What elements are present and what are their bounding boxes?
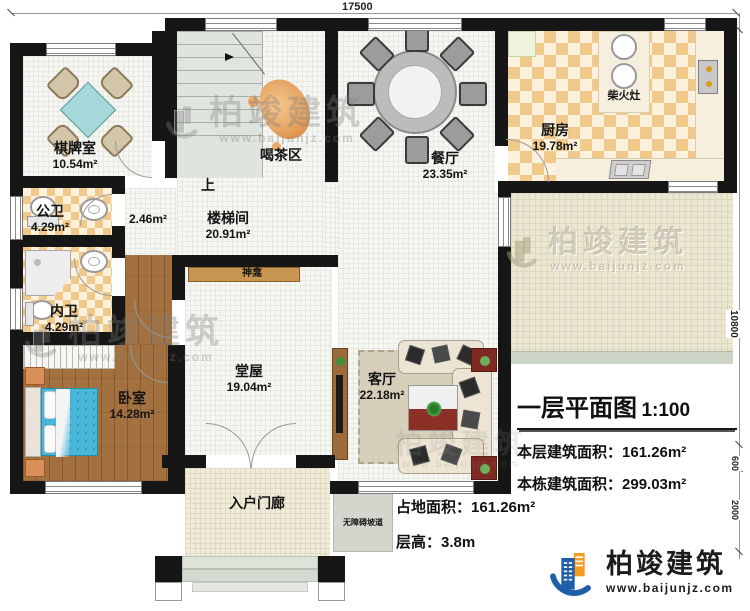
nightstand [25, 367, 45, 385]
label-wood-stove: 柴火灶 [594, 90, 654, 103]
room-name: 棋牌室 [33, 140, 117, 157]
porch-column [318, 556, 345, 582]
stair-treads [177, 31, 263, 143]
room-area: 4.29m² [22, 220, 78, 234]
sink-basin [614, 164, 629, 176]
room-area: 4.29m² [36, 320, 92, 334]
room-label-kitchen: 厨房 19.78m² [513, 122, 597, 153]
room-name: 入户门廊 [207, 495, 307, 512]
sofa-pillow [409, 445, 430, 466]
toilet-tank [25, 302, 34, 326]
sofa-pillow [461, 410, 481, 430]
room-name: 厨房 [513, 122, 597, 139]
window [668, 181, 718, 193]
dimension-line-right [739, 13, 740, 559]
room-area: 19.04m² [207, 380, 291, 394]
stair-direction-arrow-icon [225, 53, 234, 61]
window [498, 197, 511, 247]
side-table-planter [471, 348, 497, 372]
label-shrine: 神龛 [216, 268, 288, 280]
room-name: 客厅 [340, 371, 424, 388]
porch-column [155, 556, 182, 582]
fixture-name: 无障碍坡道 [334, 518, 392, 528]
plan-title-row: 一层平面图 1:100 [517, 388, 737, 430]
room-name: 楼梯间 [186, 210, 270, 227]
window [10, 288, 23, 330]
floor-area-label: 本层建筑面积： [517, 444, 622, 461]
plant-icon [336, 357, 345, 366]
shower-drain-icon [34, 259, 41, 266]
site-area-row: 占地面积：161.26m² [396, 496, 535, 517]
room-label-private-bath: 内卫 4.29m² [36, 303, 92, 334]
dimension-label-top: 17500 [340, 1, 375, 13]
logo-text: 柏竣建筑 [606, 551, 726, 578]
pillow [44, 425, 56, 453]
wall [325, 31, 338, 182]
room-label-public-bath: 公卫 4.29m² [22, 203, 78, 234]
building-area-row: 本栋建筑面积：299.03m² [517, 473, 737, 494]
room-area: 23.35m² [403, 167, 487, 181]
window [46, 43, 116, 56]
tea-stone [248, 96, 259, 107]
window [205, 18, 277, 31]
nightstand [25, 459, 45, 477]
fixture-name: 柴火灶 [594, 90, 654, 103]
door-opening [112, 258, 125, 296]
room-label-porch: 入户门廊 [207, 495, 307, 512]
column-base [155, 582, 182, 601]
sink-basin [631, 164, 646, 176]
side-table-planter [471, 456, 497, 480]
sofa-pillow [405, 345, 425, 365]
room-name: 堂屋 [207, 363, 291, 380]
gas-stove [698, 60, 718, 94]
wall [10, 43, 23, 494]
room-label-tea: 喝茶区 [248, 147, 314, 164]
room-name: 卧室 [92, 390, 172, 407]
room-area: 19.78m² [513, 139, 597, 153]
dining-table-top [388, 65, 442, 119]
floor-plan-canvas: 17500 10800 600 2000 [0, 0, 750, 611]
floor-passage [325, 182, 338, 255]
room-label-dining: 餐厅 23.35m² [403, 150, 487, 181]
floor-patio [511, 193, 733, 351]
floor-porch [185, 468, 330, 556]
room-label-living: 客厅 22.18m² [340, 371, 424, 402]
room-area: 10.54m² [33, 157, 117, 171]
label-ramp: 无障碍坡道 [334, 518, 392, 528]
room-area: 14.28m² [92, 407, 172, 421]
room-label-hall: 堂屋 19.04m² [207, 363, 291, 394]
room-area: 2.46m² [120, 212, 176, 226]
dimension-line-top [12, 13, 737, 14]
bed-headboard [25, 387, 41, 457]
room-area: 22.18m² [340, 388, 424, 402]
window [45, 481, 142, 494]
sofa-pillow [459, 377, 481, 399]
plant-icon [426, 401, 442, 417]
plant-icon [480, 356, 490, 366]
bed-sheet-fold [56, 389, 70, 457]
wardrobe [23, 345, 115, 369]
tv-cabinet [332, 348, 348, 460]
pillow [44, 391, 56, 419]
window [358, 481, 474, 494]
stairs-up-label: 上 [190, 177, 226, 194]
label-stairs-up: 上 [190, 177, 226, 194]
window [664, 18, 706, 31]
site-area-label: 占地面积： [396, 499, 471, 516]
wall [165, 141, 177, 178]
chair [459, 82, 487, 106]
room-area: 20.91m² [186, 227, 270, 241]
wall [152, 31, 177, 141]
room-name: 公卫 [22, 203, 78, 220]
floor-height-label: 层高： [396, 534, 441, 551]
wood-stove-burner [611, 34, 637, 60]
wall [724, 18, 737, 193]
kitchen-sink [609, 160, 652, 179]
fixture-name: 神龛 [216, 268, 288, 280]
plan-title: 一层平面图 [517, 395, 637, 422]
brand-logo: 柏竣建筑 www.baijunjz.com [548, 547, 734, 599]
sofa-pillow [441, 444, 463, 466]
wall [10, 235, 125, 247]
burner-icon [706, 81, 712, 87]
chair [347, 82, 375, 106]
burner-icon [706, 66, 712, 72]
bed [41, 388, 98, 456]
dimension-label-right: 2000 [728, 500, 742, 520]
title-block: 一层平面图 1:100 本层建筑面积：161.26m² 本栋建筑面积：299.0… [517, 388, 737, 494]
wall [185, 255, 338, 267]
site-area-value: 161.26m² [471, 499, 535, 516]
patio-edge-step [511, 351, 733, 364]
window [368, 18, 462, 31]
building-area-value: 299.03m² [622, 476, 686, 493]
wall [495, 31, 508, 146]
wall [172, 255, 185, 300]
plant-icon [480, 464, 490, 474]
wall [10, 176, 125, 188]
room-name: 喝茶区 [248, 147, 314, 164]
building-area-label: 本栋建筑面积： [517, 476, 622, 493]
floor-area-row: 本层建筑面积：161.26m² [517, 441, 737, 462]
room-label-bedroom: 卧室 14.28m² [92, 390, 172, 421]
floor-area-value: 161.26m² [622, 444, 686, 461]
dimension-label-right: 10800 [726, 310, 741, 338]
room-label-stairwell: 楼梯间 20.91m² [186, 210, 270, 241]
room-name: 餐厅 [403, 150, 487, 167]
wood-stove-burner [611, 63, 637, 89]
floor-height-row: 层高：3.8m [396, 531, 475, 552]
porch-step [182, 569, 318, 582]
kitchen-window-box [508, 31, 536, 57]
room-name: 内卫 [36, 303, 92, 320]
room-label-chess: 棋牌室 10.54m² [33, 140, 117, 171]
column-base [318, 582, 345, 601]
porch-step [182, 556, 318, 569]
logo-building-icon [548, 547, 598, 599]
floor-height-value: 3.8m [441, 534, 475, 551]
sofa-pillow [432, 345, 451, 364]
tea-stone [298, 106, 310, 118]
plan-scale: 1:100 [641, 400, 690, 421]
porch-step [192, 582, 308, 592]
logo-url: www.baijunjz.com [606, 581, 734, 595]
label-corridor-area: 2.46m² [120, 212, 176, 226]
